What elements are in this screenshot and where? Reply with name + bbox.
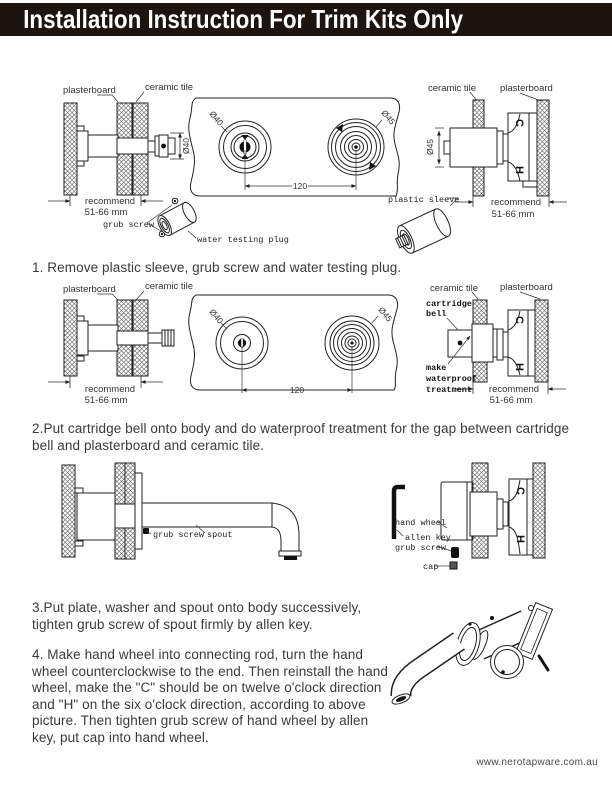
svg-text:120: 120 (293, 181, 307, 191)
svg-text:recommend: recommend (489, 384, 539, 395)
page-title: Installation Instruction For Trim Kits O… (0, 4, 463, 35)
assembled-tap-3d (391, 603, 553, 707)
svg-text:treatment: treatment (426, 385, 472, 395)
c-mark: C (513, 316, 525, 324)
hand-wheel (491, 646, 524, 679)
plasterboard-label: plasterboard (500, 83, 553, 94)
ceramic-tile-label: ceramic tile (145, 281, 193, 292)
trim-body: C H (448, 310, 535, 376)
website-url: www.nerotapware.com.au (400, 757, 598, 768)
plastic-sleeve-label: plastic sleeve (388, 195, 459, 205)
grub-screw (451, 547, 459, 558)
svg-text:Ø40: Ø40 (181, 138, 191, 154)
cap-label: cap (423, 562, 438, 572)
s2-wall-section-left: plasterboard ceramic tile recom (48, 281, 193, 406)
diagram-step3: grub screw spout hand wheel allen key gr… (0, 452, 612, 602)
svg-text:recommend: recommend (85, 384, 135, 395)
recommend-range-label: 51-66 mm (85, 207, 128, 218)
s1-wall-section-right: ceramic tile plasterboard C H Ø45 (388, 83, 567, 257)
cartridge-bell-label: cartridge bell (426, 299, 472, 330)
water-testing-plug: water testing plug (155, 200, 289, 245)
svg-text:waterproof: waterproof (426, 374, 477, 384)
instruction-sheet: Installation Instruction For Trim Kits O… (0, 0, 612, 789)
step-1-text: 1. Remove plastic sleeve, grub screw and… (32, 260, 552, 277)
diagram-step2: plasterboard ceramic tile recom (0, 278, 612, 422)
plasterboard-wall (537, 100, 549, 196)
grub-screw-label: grub screw (395, 543, 447, 553)
grub-screw-label: grub screw (153, 530, 205, 540)
plasterboard-wall (533, 463, 545, 558)
diagram-assembled-tap (0, 598, 612, 756)
h-mark: H (513, 166, 525, 174)
trim-body: C H (444, 113, 537, 187)
c-mark: C (514, 487, 526, 495)
svg-text:make: make (426, 363, 446, 373)
svg-text:51-66 mm: 51-66 mm (490, 395, 533, 406)
spout-label: spout (207, 530, 233, 540)
dimension-wall-thickness: recommend 51-66 mm (48, 376, 163, 406)
plasterboard-wall (62, 465, 75, 557)
hand-wheel (441, 482, 473, 540)
plasterboard-label: plasterboard (63, 284, 116, 295)
diagram-step1: plasterboard ceramic tile (0, 80, 612, 262)
svg-text:Ø45: Ø45 (425, 139, 435, 155)
title-bar: Installation Instruction For Trim Kits O… (0, 3, 612, 36)
svg-text:cartridge: cartridge (426, 299, 472, 309)
grub-screw-label: grub screw (103, 220, 155, 230)
check-lever (539, 656, 548, 670)
recommend-label: recommend (85, 196, 135, 207)
svg-text:recommend: recommend (491, 197, 541, 208)
h-mark: H (514, 535, 526, 543)
ceramic-tile-label: ceramic tile (430, 283, 478, 294)
c-mark: C (513, 119, 525, 127)
hand-wheel-label: hand wheel (395, 518, 446, 528)
cap (450, 562, 457, 569)
allen-key (394, 487, 405, 539)
plasterboard-wall (64, 103, 77, 195)
svg-text:51-66 mm: 51-66 mm (85, 395, 128, 406)
plasterboard-wall (535, 300, 548, 382)
plasterboard-label: plasterboard (63, 85, 116, 96)
dimension-wall-thickness: recommend 51-66 mm (455, 196, 567, 220)
s3-handwheel-section: hand wheel allen key grub screw cap C H (394, 463, 545, 572)
ceramic-tile-label: ceramic tile (145, 82, 193, 93)
spout (391, 641, 459, 706)
allen-key-label: allen key (405, 533, 451, 543)
svg-text:120: 120 (290, 385, 304, 395)
s3-spout-section: grub screw spout (62, 463, 301, 560)
svg-text:bell: bell (426, 309, 446, 319)
h-mark: H (513, 363, 525, 371)
dimension-wall-thickness: recommend 51-66 mm (48, 195, 163, 218)
water-testing-plug-label: water testing plug (197, 235, 289, 245)
plastic-sleeve: plastic sleeve (388, 195, 459, 257)
dimension-dia45-side: Ø45 (425, 128, 444, 167)
svg-text:51-66 mm: 51-66 mm (492, 209, 535, 220)
plasterboard-wall (64, 300, 77, 376)
s2-front-view: Ø40 Ø45 120 (189, 295, 398, 395)
step-2-text: 2.Put cartridge bell onto body and do wa… (32, 421, 592, 454)
s2-wall-section-right: ceramic tile plasterboard cartridge bell (426, 282, 566, 406)
ceramic-tile-label: ceramic tile (428, 83, 476, 94)
s1-front-view: Ø40 Ø45 120 (189, 98, 400, 196)
plasterboard-label: plasterboard (500, 282, 553, 293)
